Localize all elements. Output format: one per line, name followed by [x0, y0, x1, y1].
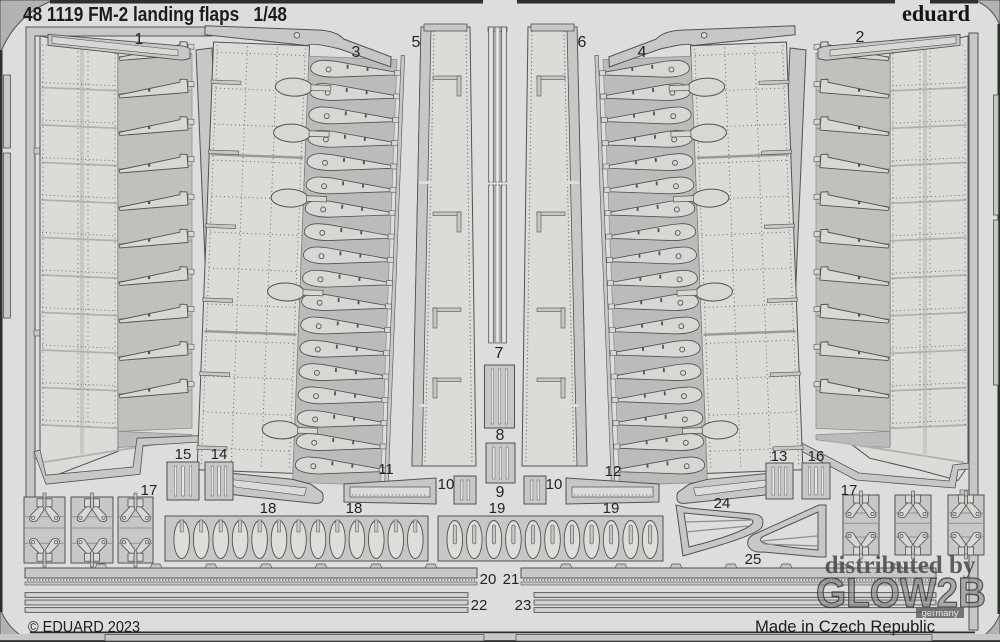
- svg-text:2: 2: [856, 29, 865, 46]
- svg-text:10: 10: [438, 476, 455, 493]
- svg-text:3: 3: [352, 44, 361, 61]
- svg-text:10: 10: [546, 476, 563, 493]
- svg-text:17: 17: [141, 482, 158, 499]
- svg-text:24: 24: [714, 495, 731, 512]
- svg-text:25: 25: [745, 551, 762, 568]
- svg-text:eduard: eduard: [902, 1, 970, 26]
- svg-text:15: 15: [175, 446, 192, 463]
- svg-text:5: 5: [412, 34, 421, 51]
- svg-text:20: 20: [480, 571, 497, 588]
- svg-text:6: 6: [578, 34, 587, 51]
- svg-text:8: 8: [496, 427, 505, 444]
- svg-text:germany: germany: [922, 608, 959, 619]
- svg-text:21: 21: [503, 571, 520, 588]
- svg-text:13: 13: [771, 448, 788, 465]
- svg-text:14: 14: [211, 446, 228, 463]
- svg-text:16: 16: [808, 448, 825, 465]
- svg-text:48 1119 FM-2 landing flaps 1: 48 1119 FM-2 landing flaps 1/48: [23, 4, 287, 26]
- svg-text:4: 4: [638, 44, 647, 61]
- svg-text:12: 12: [605, 463, 622, 480]
- svg-text:18: 18: [346, 500, 363, 517]
- svg-text:9: 9: [496, 484, 505, 501]
- svg-text:1: 1: [135, 31, 144, 48]
- svg-text:19: 19: [603, 500, 620, 517]
- svg-text:23: 23: [515, 597, 532, 614]
- svg-text:11: 11: [378, 461, 394, 478]
- svg-text:7: 7: [495, 345, 504, 362]
- svg-text:18: 18: [260, 500, 277, 517]
- svg-text:Made in Czech Republic: Made in Czech Republic: [755, 617, 935, 636]
- svg-text:© EDUARD 2023: © EDUARD 2023: [28, 619, 140, 636]
- svg-text:17: 17: [841, 482, 858, 499]
- svg-text:22: 22: [471, 597, 488, 614]
- svg-text:19: 19: [489, 500, 506, 517]
